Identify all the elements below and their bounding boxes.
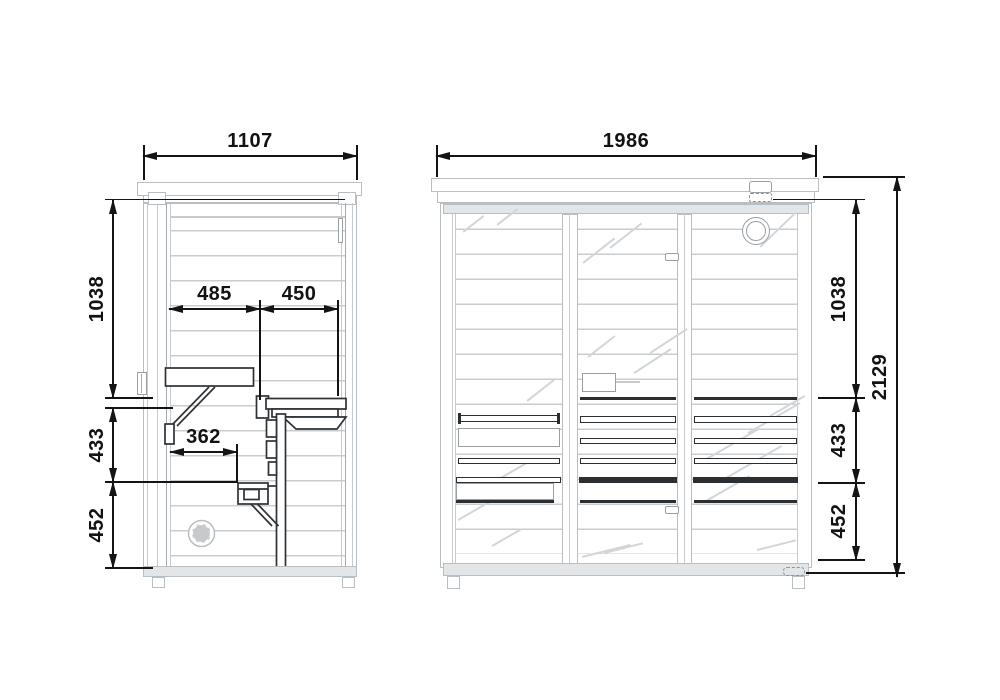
extension-line: [337, 300, 339, 396]
extension-line: [436, 145, 438, 177]
glass-panel-right: [692, 214, 797, 563]
bench-board-edge: [580, 500, 676, 503]
bench-board-end: [557, 413, 560, 424]
front-foot: [792, 576, 805, 589]
arrowhead-icon: [852, 546, 860, 561]
extension-line: [105, 199, 345, 201]
dimension-label: 433: [85, 403, 109, 487]
bench-board: [458, 415, 560, 422]
bench-board-edge: [580, 397, 676, 400]
step-depth-dimension: 362: [170, 451, 237, 453]
wall-bracket: [165, 424, 174, 444]
bench-back-depth-dimension: 485: [169, 308, 260, 310]
backrest-board: [166, 368, 254, 386]
arrowhead-icon: [109, 384, 117, 399]
bench-board: [580, 438, 676, 444]
front-top-rail: [443, 204, 809, 214]
bench-front-panel: [458, 428, 560, 447]
round-vent-inner: [746, 221, 766, 241]
bench-front-depth-dimension: 450: [260, 308, 338, 310]
dimension-label: 452: [85, 483, 109, 567]
dimension-label: 1038: [85, 257, 109, 341]
arrowhead-icon: [109, 407, 117, 422]
arrowhead-icon: [324, 305, 339, 313]
door-latch-tab: [665, 506, 679, 514]
side-middle-height-dimension: [112, 408, 114, 482]
bench-board-end: [458, 413, 461, 424]
arrowhead-icon: [168, 305, 183, 313]
front-corner-line: [452, 214, 453, 564]
side-foot: [152, 577, 165, 588]
arrowhead-icon: [259, 305, 274, 313]
upper-bench-bracket: [283, 417, 346, 429]
arrowhead-icon: [169, 448, 184, 456]
arrowhead-icon: [435, 152, 450, 160]
arrowhead-icon: [893, 563, 901, 578]
roof-vent-cap-hidden: [749, 193, 772, 202]
dimension-label: 433: [827, 398, 851, 482]
bench-board-edge: [694, 500, 797, 503]
bench-board: [580, 416, 676, 423]
bench-board-edge: [579, 477, 677, 483]
side-width-dimension: 1107: [143, 155, 357, 157]
front-floor: [443, 563, 809, 576]
side-floor: [143, 566, 357, 577]
side-lower-height-dimension: [112, 482, 114, 568]
extension-line: [815, 145, 817, 177]
side-upper-height-dimension: [112, 200, 114, 398]
arrowhead-icon: [109, 481, 117, 496]
drain-detail: [783, 567, 805, 576]
dimension-label: 485: [197, 283, 232, 306]
extension-line: [806, 572, 905, 574]
bench-post: [277, 414, 286, 568]
post-block: [267, 441, 277, 458]
door-closer-bar: [338, 218, 343, 243]
dimension-label: 362: [186, 426, 221, 449]
technical-drawing-canvas: 1107 1038 433 452 485 450 362: [0, 0, 1000, 700]
arrowhead-icon: [893, 176, 901, 191]
bench-board-edge: [694, 397, 797, 400]
front-width-dimension: 1986: [436, 155, 816, 157]
roof-vent-cap: [749, 181, 772, 193]
bench-board: [694, 458, 797, 464]
arrowhead-icon: [343, 152, 358, 160]
arrowhead-icon: [109, 199, 117, 214]
extension-line: [143, 145, 145, 180]
extension-line: [259, 300, 261, 400]
side-roof-panel: [137, 182, 362, 196]
dimension-label: 1986: [603, 130, 650, 153]
dimension-label: 452: [827, 479, 851, 563]
bench-front-panel: [456, 483, 554, 500]
bench-board-edge: [456, 500, 554, 503]
bench-board: [694, 438, 797, 444]
extension-line: [105, 481, 238, 483]
extension-line: [356, 145, 358, 180]
front-foot: [447, 576, 460, 589]
backrest-brace: [177, 387, 215, 426]
dimension-label: 1038: [827, 257, 851, 341]
dimension-label: 450: [282, 283, 317, 306]
arrowhead-icon: [223, 448, 238, 456]
control-box: [582, 373, 616, 392]
door-latch-tab: [665, 253, 679, 261]
dimension-label: 1107: [227, 130, 272, 153]
arrowhead-icon: [852, 482, 860, 497]
backrest-brace: [171, 387, 209, 426]
mullion-line: [684, 214, 685, 564]
arrowhead-icon: [852, 397, 860, 412]
front-lower-height-dimension: [855, 483, 857, 560]
bench-board: [694, 416, 797, 423]
bench-board: [458, 458, 560, 464]
side-top-rail: [170, 216, 345, 218]
control-box-leader: [616, 381, 640, 383]
total-height-dimension: [896, 177, 898, 577]
front-middle-height-dimension: [855, 398, 857, 483]
bench-assembly: [130, 360, 362, 572]
mullion-line: [569, 214, 570, 564]
bench-board: [580, 458, 676, 464]
front-upper-height-dimension: [855, 200, 857, 398]
arrowhead-icon: [802, 152, 817, 160]
post-block: [269, 462, 277, 475]
arrowhead-icon: [109, 554, 117, 569]
lower-bench-inner: [244, 490, 259, 500]
arrowhead-icon: [852, 199, 860, 214]
bench-board-edge: [693, 477, 798, 483]
upper-bench-board: [266, 399, 346, 410]
side-foot: [342, 577, 355, 588]
front-corner-line: [797, 214, 798, 564]
arrowhead-icon: [142, 152, 157, 160]
mullion: [562, 214, 578, 564]
heater-icon-core: [192, 524, 211, 543]
dimension-label: 2129: [868, 335, 892, 419]
post-block: [267, 420, 277, 437]
